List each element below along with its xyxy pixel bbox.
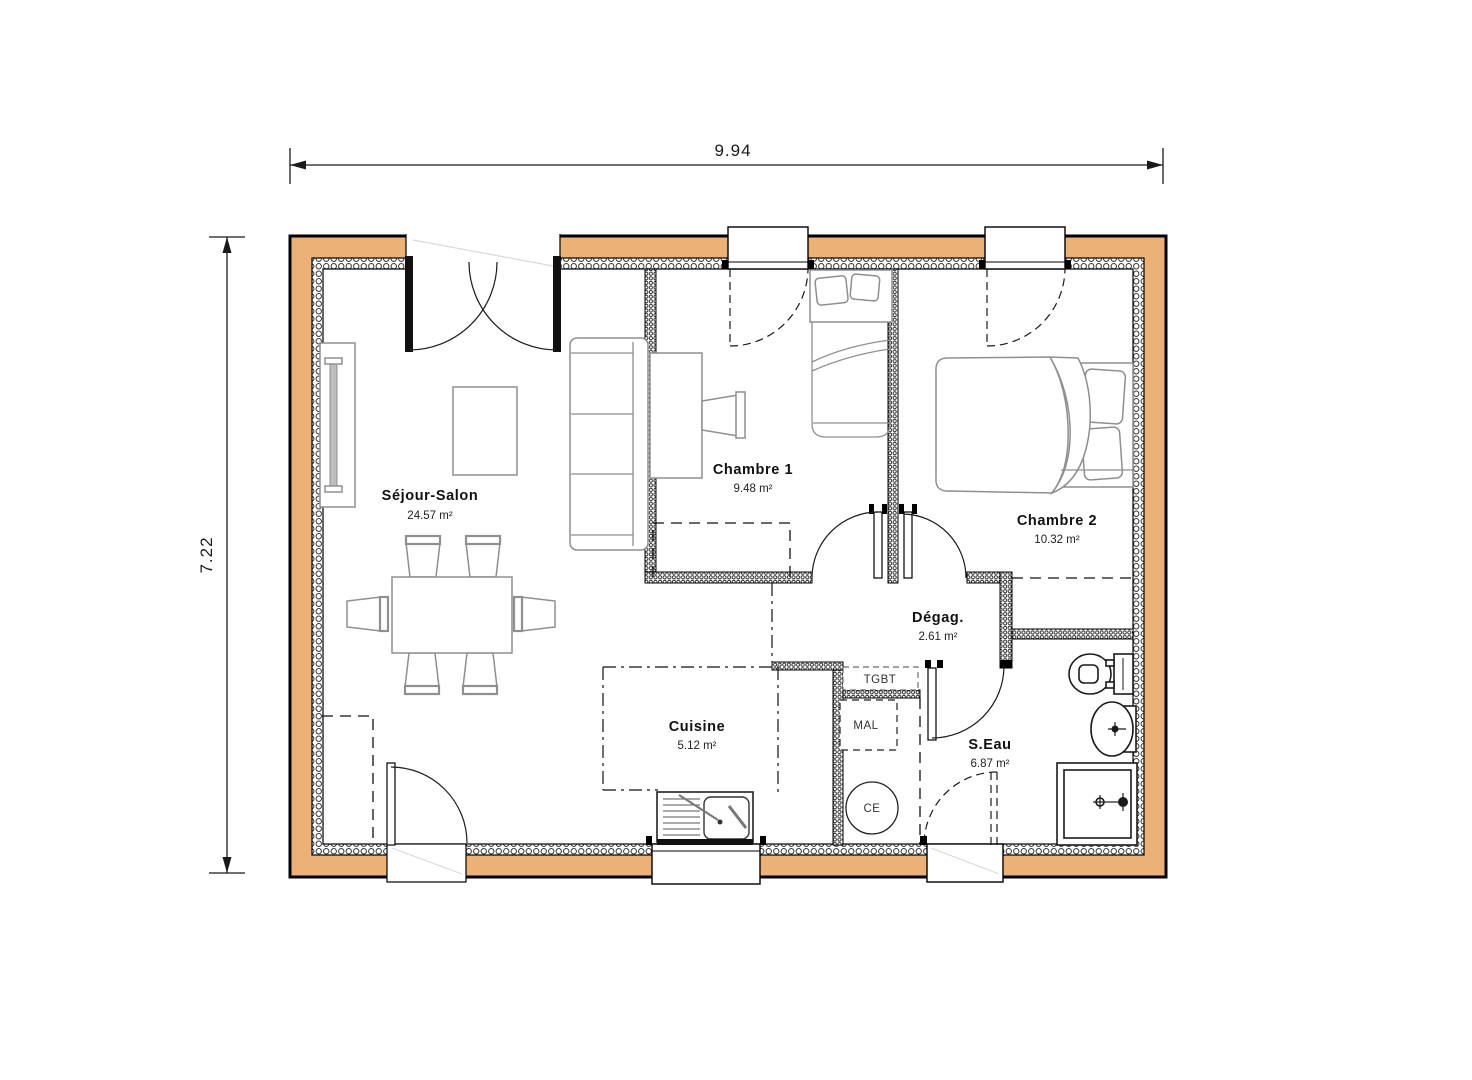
room-name: Chambre 1	[713, 462, 793, 478]
window-chambre2	[979, 227, 1071, 346]
shower	[1057, 763, 1137, 845]
room-area: 10.32 m²	[1034, 534, 1080, 546]
mal-box: MAL	[840, 700, 897, 750]
water-heater: CE	[846, 782, 898, 834]
door-chambre1	[812, 504, 887, 578]
room-label-degagement: Dégag. 2.61 m²	[912, 610, 964, 643]
tgbt-label: TGBT	[864, 674, 897, 686]
room-area: 5.12 m²	[678, 740, 717, 752]
interior-walls	[645, 269, 1133, 845]
dining-set	[347, 536, 555, 694]
door-chambre2	[899, 504, 966, 578]
coffee-table	[453, 387, 517, 475]
desk-chambre1	[650, 353, 745, 478]
floor-plan-drawing: 9.94 7.22	[0, 0, 1472, 1080]
washbasin	[1091, 702, 1136, 756]
room-label-cuisine: Cuisine 5.12 m²	[669, 719, 726, 752]
room-label-sejour-salon: Séjour-Salon 24.57 m²	[382, 488, 479, 522]
tgbt-box: TGBT	[843, 667, 918, 690]
room-name: Chambre 2	[1017, 513, 1097, 529]
room-name: Séjour-Salon	[382, 488, 479, 504]
mal-label: MAL	[853, 720, 878, 732]
kitchen-sink-unit	[657, 792, 753, 845]
room-area: 9.48 m²	[734, 483, 773, 495]
dimension-vertical: 7.22	[197, 237, 245, 873]
room-name: Dégag.	[912, 610, 964, 626]
door-sejour-exterior	[387, 763, 467, 882]
room-label-chambre-1: Chambre 1 9.48 m²	[713, 462, 793, 495]
entry-door	[405, 234, 561, 352]
height-dimension-label: 7.22	[197, 536, 216, 573]
sofa	[570, 338, 648, 550]
toilet	[1069, 654, 1133, 694]
room-label-salle-eau: S.Eau 6.87 m²	[968, 737, 1011, 770]
room-area: 24.57 m²	[407, 510, 453, 522]
floor-plan-canvas: 9.94 7.22	[0, 0, 1472, 1080]
dining-table	[392, 577, 512, 653]
room-name: Cuisine	[669, 719, 726, 735]
room-label-chambre-2: Chambre 2 10.32 m²	[1017, 513, 1097, 546]
bed-chambre2	[936, 357, 1133, 493]
room-name: S.Eau	[968, 737, 1011, 753]
door-seau-exterior	[920, 772, 1003, 882]
room-area: 2.61 m²	[919, 631, 958, 643]
window-chambre1	[722, 227, 814, 346]
door-salle-eau	[925, 660, 1012, 740]
ce-label: CE	[864, 803, 881, 815]
width-dimension-label: 9.94	[714, 141, 751, 160]
bed-chambre1	[810, 270, 892, 437]
dimension-horizontal: 9.94	[290, 141, 1163, 184]
room-area: 6.87 m²	[971, 758, 1010, 770]
tv-cabinet	[320, 343, 355, 507]
